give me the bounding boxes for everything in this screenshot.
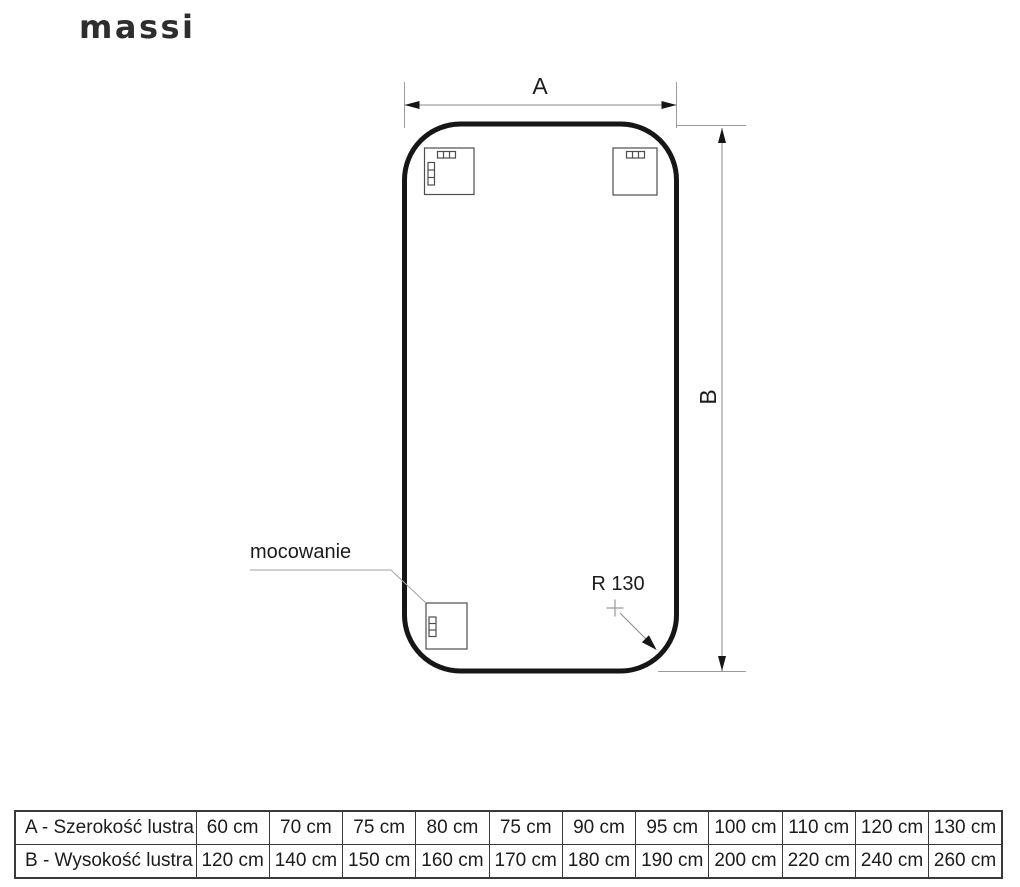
size-cell: 60 cm (196, 811, 269, 845)
size-cell: 140 cm (269, 845, 342, 879)
size-cell: 70 cm (269, 811, 342, 845)
size-cell: 120 cm (855, 811, 928, 845)
mount-callout: mocowanie (250, 541, 426, 603)
dimension-a-label: A (532, 73, 548, 99)
mount-bracket-top-right-icon (613, 148, 657, 195)
size-cell: 130 cm (929, 811, 1002, 845)
mount-bracket-top-left-icon (425, 148, 475, 195)
dimension-b-arrow-bottom (718, 656, 726, 671)
mount-leader-line (250, 570, 426, 603)
size-cell: 120 cm (196, 845, 269, 879)
product-dimension-sheet: massi (0, 0, 1020, 887)
mount-label: mocowanie (250, 541, 351, 563)
dimension-a-arrow-right (662, 101, 677, 109)
height-row-header: B - Wysokość lustra (15, 845, 196, 879)
height-row: B - Wysokość lustra 120 cm 140 cm 150 cm… (15, 845, 1002, 879)
dimension-a-arrow-left (405, 101, 420, 109)
dimension-b-arrow-top (718, 128, 726, 143)
size-cell: 75 cm (489, 811, 562, 845)
width-row-header: A - Szerokość lustra (15, 811, 196, 845)
size-cell: 160 cm (416, 845, 489, 879)
size-cell: 150 cm (343, 845, 416, 879)
dimension-a: A (405, 73, 677, 128)
size-cell: 100 cm (709, 811, 782, 845)
size-cell: 240 cm (855, 845, 928, 879)
size-cell: 190 cm (636, 845, 709, 879)
size-cell: 75 cm (343, 811, 416, 845)
size-cell: 180 cm (562, 845, 635, 879)
dimension-b-label: B (695, 389, 721, 404)
size-cell: 95 cm (636, 811, 709, 845)
size-cell: 80 cm (416, 811, 489, 845)
size-table: A - Szerokość lustra 60 cm 70 cm 75 cm 8… (14, 810, 1003, 879)
size-cell: 220 cm (782, 845, 855, 879)
radius-label: R 130 (591, 573, 644, 595)
mirror-dimension-diagram: A B mocowanie R 130 (0, 0, 1020, 790)
size-cell: 200 cm (709, 845, 782, 879)
size-cell: 260 cm (929, 845, 1002, 879)
size-cell: 170 cm (489, 845, 562, 879)
width-row: A - Szerokość lustra 60 cm 70 cm 75 cm 8… (15, 811, 1002, 845)
size-cell: 110 cm (782, 811, 855, 845)
mount-bracket-bottom-left-icon (426, 603, 467, 649)
size-cell: 90 cm (562, 811, 635, 845)
